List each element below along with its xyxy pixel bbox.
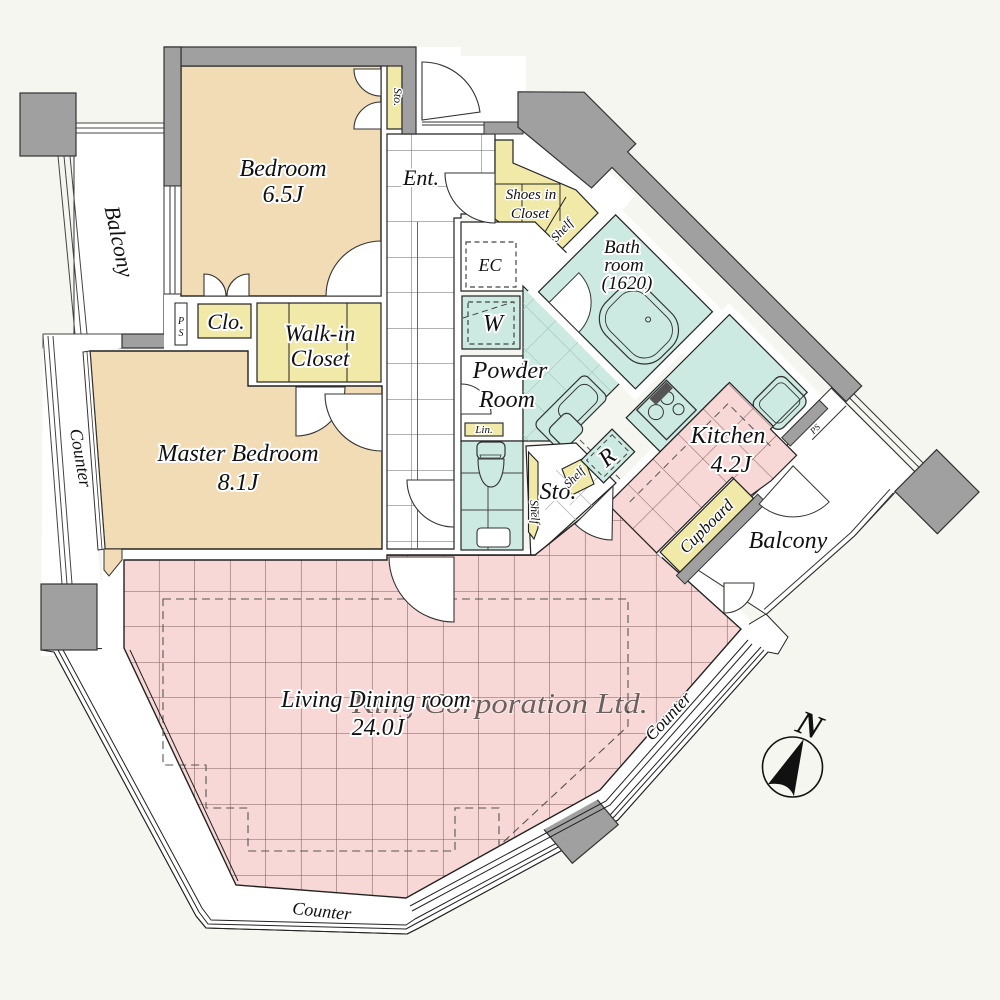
- svg-text:P: P: [177, 316, 184, 327]
- svg-text:Shelf: Shelf: [527, 499, 543, 526]
- svg-text:EC: EC: [477, 255, 502, 275]
- svg-text:Sto.: Sto.: [391, 88, 405, 106]
- svg-text:Walk-in: Walk-in: [285, 321, 356, 346]
- svg-text:S: S: [179, 328, 184, 339]
- svg-text:Lin.: Lin.: [474, 424, 492, 436]
- svg-text:Shoes in: Shoes in: [506, 187, 556, 203]
- svg-text:Clo.: Clo.: [207, 309, 244, 334]
- svg-text:6.5J: 6.5J: [263, 182, 305, 208]
- svg-text:24.0J: 24.0J: [352, 715, 406, 741]
- svg-text:8.1J: 8.1J: [218, 470, 260, 496]
- svg-text:Closet: Closet: [291, 346, 350, 371]
- svg-text:Balcony: Balcony: [749, 528, 828, 554]
- svg-text:(1620): (1620): [602, 273, 653, 294]
- svg-text:Kitchen: Kitchen: [690, 423, 766, 449]
- svg-text:Bedroom: Bedroom: [239, 156, 326, 182]
- svg-text:Closet: Closet: [511, 206, 550, 222]
- svg-text:Room: Room: [478, 387, 535, 413]
- svg-text:Living Dining room: Living Dining room: [280, 687, 471, 713]
- svg-text:4.2J: 4.2J: [711, 452, 753, 478]
- svg-text:Powder: Powder: [472, 358, 548, 384]
- svg-text:W: W: [483, 311, 505, 337]
- svg-text:Ent.: Ent.: [402, 165, 439, 190]
- svg-text:Master Bedroom: Master Bedroom: [156, 441, 318, 467]
